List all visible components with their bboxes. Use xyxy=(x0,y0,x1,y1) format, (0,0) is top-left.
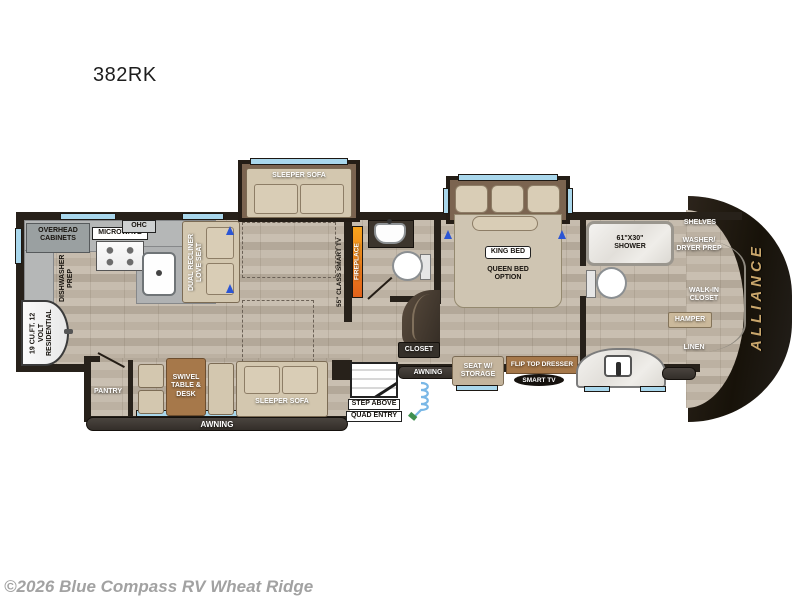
quad-entry-label: QUAD ENTRY xyxy=(351,412,397,420)
front-toilet-bowl xyxy=(596,267,627,299)
sofa-slide-window xyxy=(250,158,348,165)
class-tv-label: 55" CLASS SMART TV xyxy=(334,224,346,320)
dishwasher-prep-label: DISHWASHER PREP xyxy=(56,250,78,306)
mid-toilet-bowl xyxy=(392,251,423,281)
refrigerator-label: 19 CU.FT. 12 VOLT RESIDENTIAL xyxy=(25,304,59,362)
vanity-faucet-icon xyxy=(616,362,621,376)
sofa-top-cushion-right xyxy=(300,184,344,214)
ohc-label: OHC xyxy=(131,222,147,230)
queen-bed-option-label: QUEEN BED OPTION xyxy=(481,266,535,283)
sofa-top-cushion-left xyxy=(254,184,298,214)
kitchen-window xyxy=(60,213,116,220)
theater-marker-icon-2 xyxy=(226,284,234,293)
step-above-box: STEP ABOVE xyxy=(348,399,400,410)
sleeper-sofa-top-label: SLEEPER SOFA xyxy=(250,172,348,180)
bed-roll-pillow xyxy=(472,216,538,231)
pantry-top-stub xyxy=(84,356,100,362)
bath-sink xyxy=(374,223,406,244)
smart-tv-label: SMART TV xyxy=(517,377,561,385)
floorplan-page: 382RK OVERHEAD CABINETS MICROWAVE OHC DI… xyxy=(0,0,800,600)
dual-recliner-label: DUAL RECLINER LOVE SEAT xyxy=(186,230,206,294)
theater-marker-icon-1 xyxy=(226,226,234,235)
kitchen-faucet-icon xyxy=(156,270,162,276)
vanity-window-left xyxy=(584,386,610,392)
slide-side-chair xyxy=(208,363,234,415)
refrigerator-handle-icon xyxy=(64,329,73,334)
pantry-right-wall xyxy=(128,360,133,418)
vanity-window-right xyxy=(640,386,666,392)
seat-w-storage-label: SEAT W/ STORAGE xyxy=(454,363,502,380)
sofa-bottom-cushion-right xyxy=(282,366,318,394)
front-toilet-tank xyxy=(586,270,596,298)
linen-label: LINEN xyxy=(672,344,716,352)
top-wall xyxy=(16,212,742,220)
bumper-bar xyxy=(662,367,696,380)
model-number: 382RK xyxy=(93,64,157,87)
shower-label: 61"x30" SHOWER xyxy=(600,235,660,252)
living-window xyxy=(182,213,224,220)
bed-slide-window-top xyxy=(458,174,558,181)
king-bed-label-box: KING BED xyxy=(485,246,531,259)
bedroom-marker-icon-2 xyxy=(558,230,566,239)
seat-window xyxy=(456,385,498,391)
sleeper-sofa-bottom-label: SLEEPER SOFA xyxy=(244,398,320,406)
bed-pillow-2 xyxy=(491,185,524,213)
range-cooktop xyxy=(96,241,144,271)
slide-chair-left-2 xyxy=(138,390,164,414)
copyright-watermark: ©2026 Blue Compass RV Wheat Ridge xyxy=(4,577,313,597)
slide-travel-guide-bottom xyxy=(242,300,314,362)
ohc-cabinet: OHC xyxy=(122,220,156,233)
step-above-label: STEP ABOVE xyxy=(352,400,397,408)
bed-slide-window-left xyxy=(443,188,449,214)
slide-travel-guide-top xyxy=(242,222,336,278)
awning-entry-label: AWNING xyxy=(404,369,452,377)
awning-main-label: AWNING xyxy=(190,420,244,429)
quad-entry-box: QUAD ENTRY xyxy=(346,411,402,422)
pantry-label: PANTRY xyxy=(88,388,128,396)
entry-left-wall xyxy=(332,360,352,380)
overhead-cabinets-label: OVERHEAD CABINETS xyxy=(28,227,88,244)
bed-pillow-1 xyxy=(455,185,488,213)
shelves-label: SHELVES xyxy=(678,219,722,227)
slide-chair-left-1 xyxy=(138,364,164,388)
entry-step-diagonal xyxy=(351,373,398,398)
kitchen-counter-left xyxy=(24,250,54,306)
sofa-bottom-cushion-left xyxy=(244,366,280,394)
bath-faucet-icon xyxy=(387,219,392,224)
king-bed-label: KING BED xyxy=(491,248,525,256)
hamper-label: HAMPER xyxy=(669,316,711,324)
flip-top-dresser-label: FLIP TOP DRESSER xyxy=(507,361,577,369)
bed-pillow-3 xyxy=(527,185,560,213)
bed-slide-window-right xyxy=(567,188,573,214)
bedroom-marker-icon-1 xyxy=(444,230,452,239)
spray-hose-icon xyxy=(406,380,432,422)
rear-window xyxy=(15,228,22,264)
swivel-table-desk-label: SWIVEL TABLE & DESK xyxy=(168,374,204,399)
brand-name: ALLIANCE xyxy=(738,228,776,366)
fireplace-label: FIREPLACE xyxy=(351,228,364,296)
closet-label: CLOSET xyxy=(399,346,439,354)
entry-step-box xyxy=(350,362,398,398)
